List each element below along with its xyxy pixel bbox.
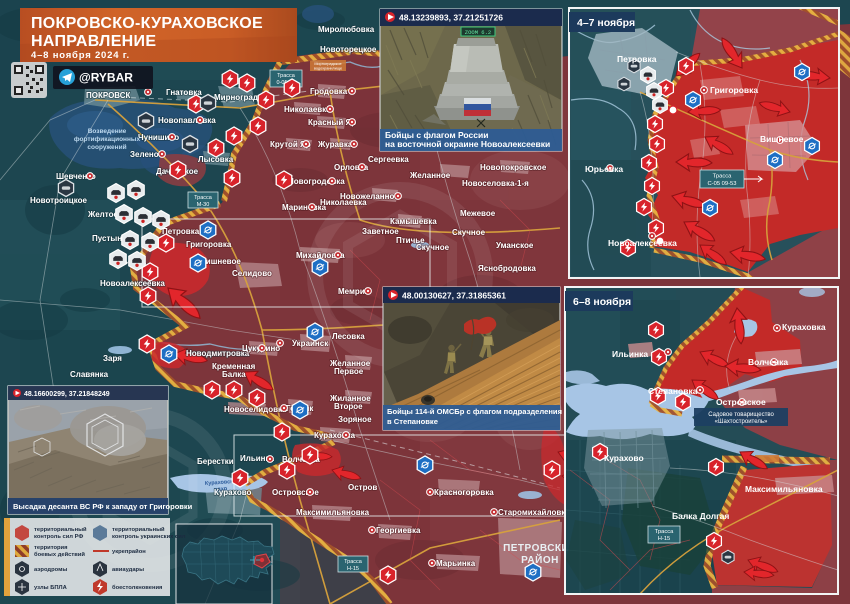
svg-text:Трасса: Трасса <box>655 529 674 535</box>
svg-text:авиаудары: авиаудары <box>112 567 144 573</box>
svg-text:ПОКРОВСК: ПОКРОВСК <box>86 91 131 100</box>
svg-text:Межевое: Межевое <box>460 209 496 218</box>
svg-text:Старомихайловка: Старомихайловка <box>498 508 570 517</box>
svg-text:Григоровка: Григоровка <box>710 85 758 95</box>
svg-text:боестолкновения: боестолкновения <box>112 584 162 591</box>
svg-text:Георгиевка: Георгиевка <box>376 526 421 535</box>
svg-text:Новогродовка: Новогродовка <box>288 177 345 186</box>
svg-text:укрепрайон: укрепрайон <box>112 548 146 555</box>
svg-text:ZOOM 6.2: ZOOM 6.2 <box>465 29 491 36</box>
svg-text:Мирноградское: Мирноградское <box>314 62 341 66</box>
svg-text:Гродовка: Гродовка <box>310 87 348 96</box>
svg-text:сооружений: сооружений <box>87 143 126 151</box>
svg-text:Первое: Первое <box>334 367 364 376</box>
svg-text:Желанное: Желанное <box>409 171 451 180</box>
svg-text:Второе: Второе <box>334 402 363 411</box>
svg-text:48.00130627, 37.31865361: 48.00130627, 37.31865361 <box>402 291 506 301</box>
svg-text:водохранилище: водохранилище <box>314 67 342 71</box>
svg-text:Марьинка: Марьинка <box>436 559 476 568</box>
svg-text:Лесовка: Лесовка <box>332 332 365 341</box>
svg-text:Красногоровка: Красногоровка <box>434 488 494 497</box>
svg-text:4–8 ноября 2024 г.: 4–8 ноября 2024 г. <box>31 50 130 61</box>
svg-text:Н-15: Н-15 <box>347 566 359 572</box>
svg-text:Вишневое: Вишневое <box>760 134 804 144</box>
svg-text:Максимильяновка: Максимильяновка <box>745 484 823 494</box>
svg-text:НАПРАВЛЕНИЕ: НАПРАВЛЕНИЕ <box>31 33 156 50</box>
svg-text:Заветное: Заветное <box>362 227 399 236</box>
svg-text:боевых действий: боевых действий <box>34 551 85 558</box>
svg-text:Берестки: Берестки <box>197 457 234 466</box>
svg-text:Трасса: Трасса <box>194 195 213 201</box>
svg-text:Журавка: Журавка <box>317 140 353 149</box>
svg-text:Островское: Островское <box>716 397 766 407</box>
svg-text:Яснобродовка: Яснобродовка <box>478 264 536 273</box>
svg-text:«Шахтостроитель»: «Шахтостроитель» <box>715 419 768 425</box>
svg-text:Курахово: Курахово <box>604 453 644 463</box>
svg-text:М-30: М-30 <box>197 202 210 208</box>
svg-text:Григоровка: Григоровка <box>186 240 232 249</box>
svg-text:С-05 09-53: С-05 09-53 <box>707 181 736 187</box>
svg-text:6–8 ноября: 6–8 ноября <box>573 296 631 308</box>
svg-text:Сергеевка: Сергеевка <box>368 155 409 164</box>
svg-text:Селидово: Селидово <box>232 269 272 278</box>
svg-text:аэродромы: аэродромы <box>34 567 67 573</box>
svg-text:Максимильяновка: Максимильяновка <box>296 508 370 517</box>
svg-text:Юрьевка: Юрьевка <box>585 164 623 174</box>
svg-text:территория: территория <box>34 545 68 551</box>
svg-text:Украинск: Украинск <box>292 339 329 348</box>
svg-text:Камышевка: Камышевка <box>390 217 437 226</box>
svg-text:Трасса: Трасса <box>713 174 732 180</box>
svg-text:территориальный: территориальный <box>34 526 87 533</box>
svg-text:контроль сил РФ: контроль сил РФ <box>34 534 83 540</box>
svg-text:Садовое товарищество: Садовое товарищество <box>708 412 774 418</box>
svg-text:Петровка: Петровка <box>617 54 657 64</box>
svg-text:Волченка: Волченка <box>748 357 788 367</box>
svg-text:Миролюбовка: Миролюбовка <box>318 25 375 34</box>
svg-text:РАЙОН: РАЙОН <box>521 553 559 566</box>
svg-text:территориальный: территориальный <box>112 526 165 533</box>
svg-text:Новотроицкое: Новотроицкое <box>30 196 87 205</box>
svg-text:в Степановке: в Степановке <box>387 417 438 426</box>
svg-text:Балка: Балка <box>222 370 246 379</box>
svg-text:ПОКРОВСКО-КУРАХОВСКОЕ: ПОКРОВСКО-КУРАХОВСКОЕ <box>31 15 263 32</box>
svg-text:Ильинка: Ильинка <box>612 349 648 359</box>
svg-text:Желтое: Желтое <box>87 210 118 219</box>
svg-text:Кураховка: Кураховка <box>782 322 826 332</box>
svg-text:Н-15: Н-15 <box>658 536 671 542</box>
svg-text:Мирноград: Мирноград <box>214 93 258 102</box>
svg-text:Новоторецкое: Новоторецкое <box>320 45 377 54</box>
svg-text:Трасса: Трасса <box>344 559 363 565</box>
svg-text:Уманское: Уманское <box>496 241 534 250</box>
svg-text:узлы БПЛА: узлы БПЛА <box>34 585 68 591</box>
svg-text:Николаевка: Николаевка <box>320 198 367 207</box>
svg-text:Славянка: Славянка <box>70 370 109 379</box>
svg-text:Остров: Остров <box>348 483 377 492</box>
svg-text:Новодмитровка: Новодмитровка <box>186 349 250 358</box>
svg-text:Возведение: Возведение <box>88 128 127 135</box>
svg-text:фортификационных: фортификационных <box>74 136 141 143</box>
svg-text:Новоселовка-1-я: Новоселовка-1-я <box>462 179 529 188</box>
svg-text:Курахово: Курахово <box>214 488 252 497</box>
svg-text:Высадка десанта ВС РФ к западу: Высадка десанта ВС РФ к западу от Григор… <box>13 502 193 511</box>
svg-text:Новоалексеевка: Новоалексеевка <box>608 238 677 248</box>
svg-text:Зоряное: Зоряное <box>338 415 372 424</box>
svg-text:Балка Долгая: Балка Долгая <box>672 511 729 521</box>
svg-text:48.16600299, 37.21848249: 48.16600299, 37.21848249 <box>24 391 110 398</box>
svg-text:48.13239893, 37.21251726: 48.13239893, 37.21251726 <box>399 13 503 23</box>
svg-text:@RYBAR: @RYBAR <box>79 71 133 85</box>
svg-text:Бойцы 114-й ОМСБр с флагом под: Бойцы 114-й ОМСБр с флагом подразделения <box>387 407 562 416</box>
svg-text:на восточной окраине Новоалекс: на восточной окраине Новоалексеевки <box>385 139 550 149</box>
svg-text:Николаевка: Николаевка <box>284 105 331 114</box>
svg-text:Новопокровское: Новопокровское <box>480 163 547 172</box>
svg-text:4–7 ноября: 4–7 ноября <box>577 17 635 29</box>
svg-text:Трасса: Трасса <box>277 73 296 79</box>
svg-text:Новоалексеевка: Новоалексеевка <box>100 279 165 288</box>
svg-text:Степановка: Степановка <box>648 386 698 396</box>
svg-text:контроль украинских сил: контроль украинских сил <box>112 534 186 540</box>
svg-text:Новопавловка: Новопавловка <box>158 116 216 125</box>
svg-text:Скучное: Скучное <box>452 228 486 237</box>
svg-text:Скучное: Скучное <box>416 243 450 252</box>
svg-text:Заря: Заря <box>103 354 122 363</box>
